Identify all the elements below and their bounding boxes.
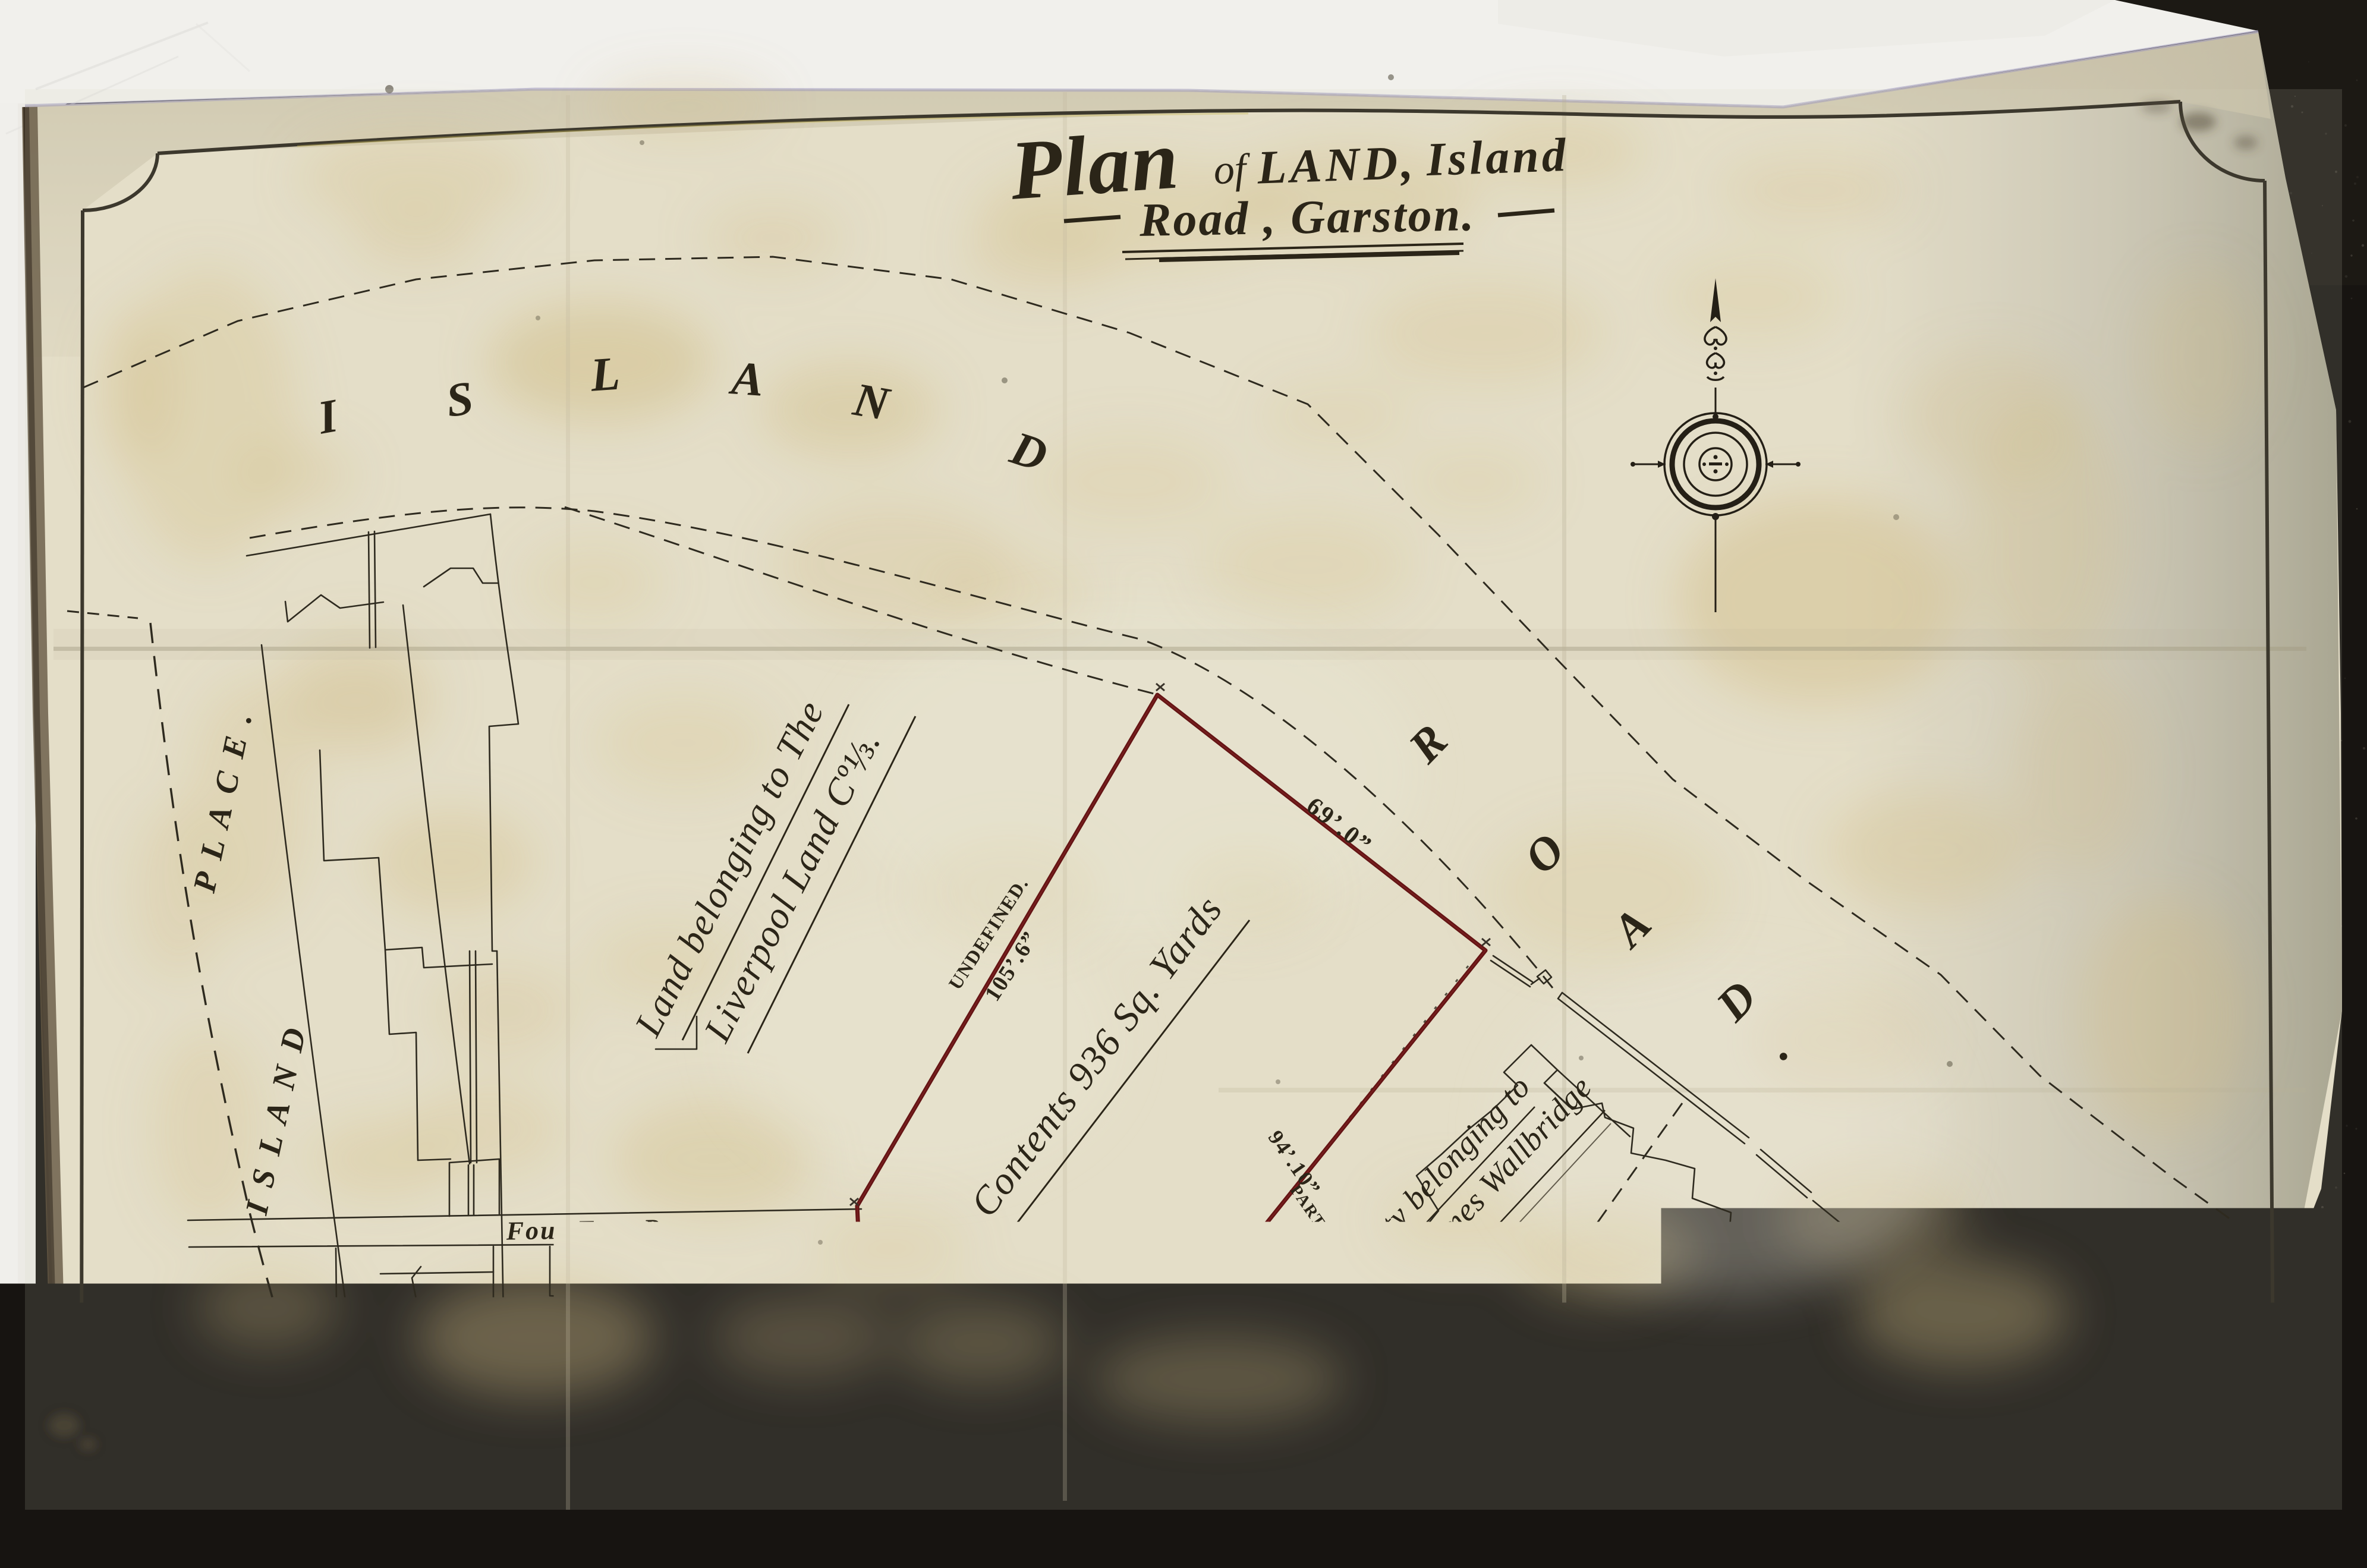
svg-text:Railway: Railway xyxy=(1205,1432,1325,1471)
svg-text:er: er xyxy=(111,1550,132,1567)
svg-text:at: at xyxy=(140,1551,161,1567)
svg-text:ller: ller xyxy=(377,1540,398,1567)
svg-text:od.: od. xyxy=(465,1543,486,1567)
svg-text:LAND,: LAND, xyxy=(1256,136,1418,194)
svg-text:from: from xyxy=(731,1528,752,1567)
svg-text:mon: mon xyxy=(1113,1533,1132,1567)
svg-text:ose: ose xyxy=(317,1542,338,1567)
svg-text:and: and xyxy=(495,1537,515,1567)
svg-text:Land: Land xyxy=(1164,1526,1183,1567)
svg-text:and to: and to xyxy=(1276,1525,1294,1566)
svg-text:ding: ding xyxy=(554,1532,575,1567)
svg-text:L: L xyxy=(588,347,622,401)
svg-text:ve: ve xyxy=(81,1550,102,1567)
svg-text:td.: td. xyxy=(1190,1547,1210,1567)
svg-text:ade: ade xyxy=(436,1539,457,1567)
svg-text:y the: y the xyxy=(820,1528,841,1567)
svg-text:LS: LS xyxy=(1417,1551,1439,1568)
svg-text:k his: k his xyxy=(879,1529,899,1567)
svg-text:tone: tone xyxy=(643,1533,663,1567)
svg-text:pon: pon xyxy=(524,1537,545,1567)
svg-text:ch: ch xyxy=(229,1548,250,1567)
svg-text:Road , Garston.: Road , Garston. xyxy=(1138,188,1476,247)
svg-text:nsive: nsive xyxy=(790,1527,811,1567)
svg-text:or: or xyxy=(288,1550,309,1567)
svg-text:ther: ther xyxy=(584,1534,605,1567)
svg-text:ever: ever xyxy=(613,1533,634,1567)
svg-text:A: A xyxy=(727,352,765,407)
svg-text:Island: Island xyxy=(1425,129,1569,186)
svg-text:their: their xyxy=(849,1529,870,1567)
svg-text:51’.3”: 51’.3” xyxy=(955,1365,1031,1398)
svg-text:LETT.: LETT. xyxy=(1301,1506,1324,1566)
svg-text:is: is xyxy=(347,1554,368,1567)
svg-text:said: said xyxy=(967,1535,988,1567)
svg-text:Lines: Lines xyxy=(1022,1439,1103,1476)
svg-text:The: The xyxy=(1138,1537,1157,1567)
svg-text:ll be: ll be xyxy=(701,1534,722,1567)
svg-text:Four Foot Passage.: Four Foot Passage. xyxy=(505,1212,751,1245)
svg-text:on: on xyxy=(200,1547,221,1567)
svg-text:rs or: rs or xyxy=(908,1529,929,1567)
svg-text:r so: r so xyxy=(761,1538,782,1567)
svg-text:Cheshire: Cheshire xyxy=(794,1445,924,1484)
svg-text:ge is: ge is xyxy=(997,1532,1018,1567)
svg-text:shall: shall xyxy=(938,1530,959,1567)
svg-text:England: England xyxy=(1356,1502,1377,1567)
svg-text:nd: nd xyxy=(170,1547,191,1567)
svg-text:of: of xyxy=(259,1551,279,1567)
svg-text:nore: nore xyxy=(672,1531,693,1567)
svg-text:or: or xyxy=(406,1550,427,1567)
